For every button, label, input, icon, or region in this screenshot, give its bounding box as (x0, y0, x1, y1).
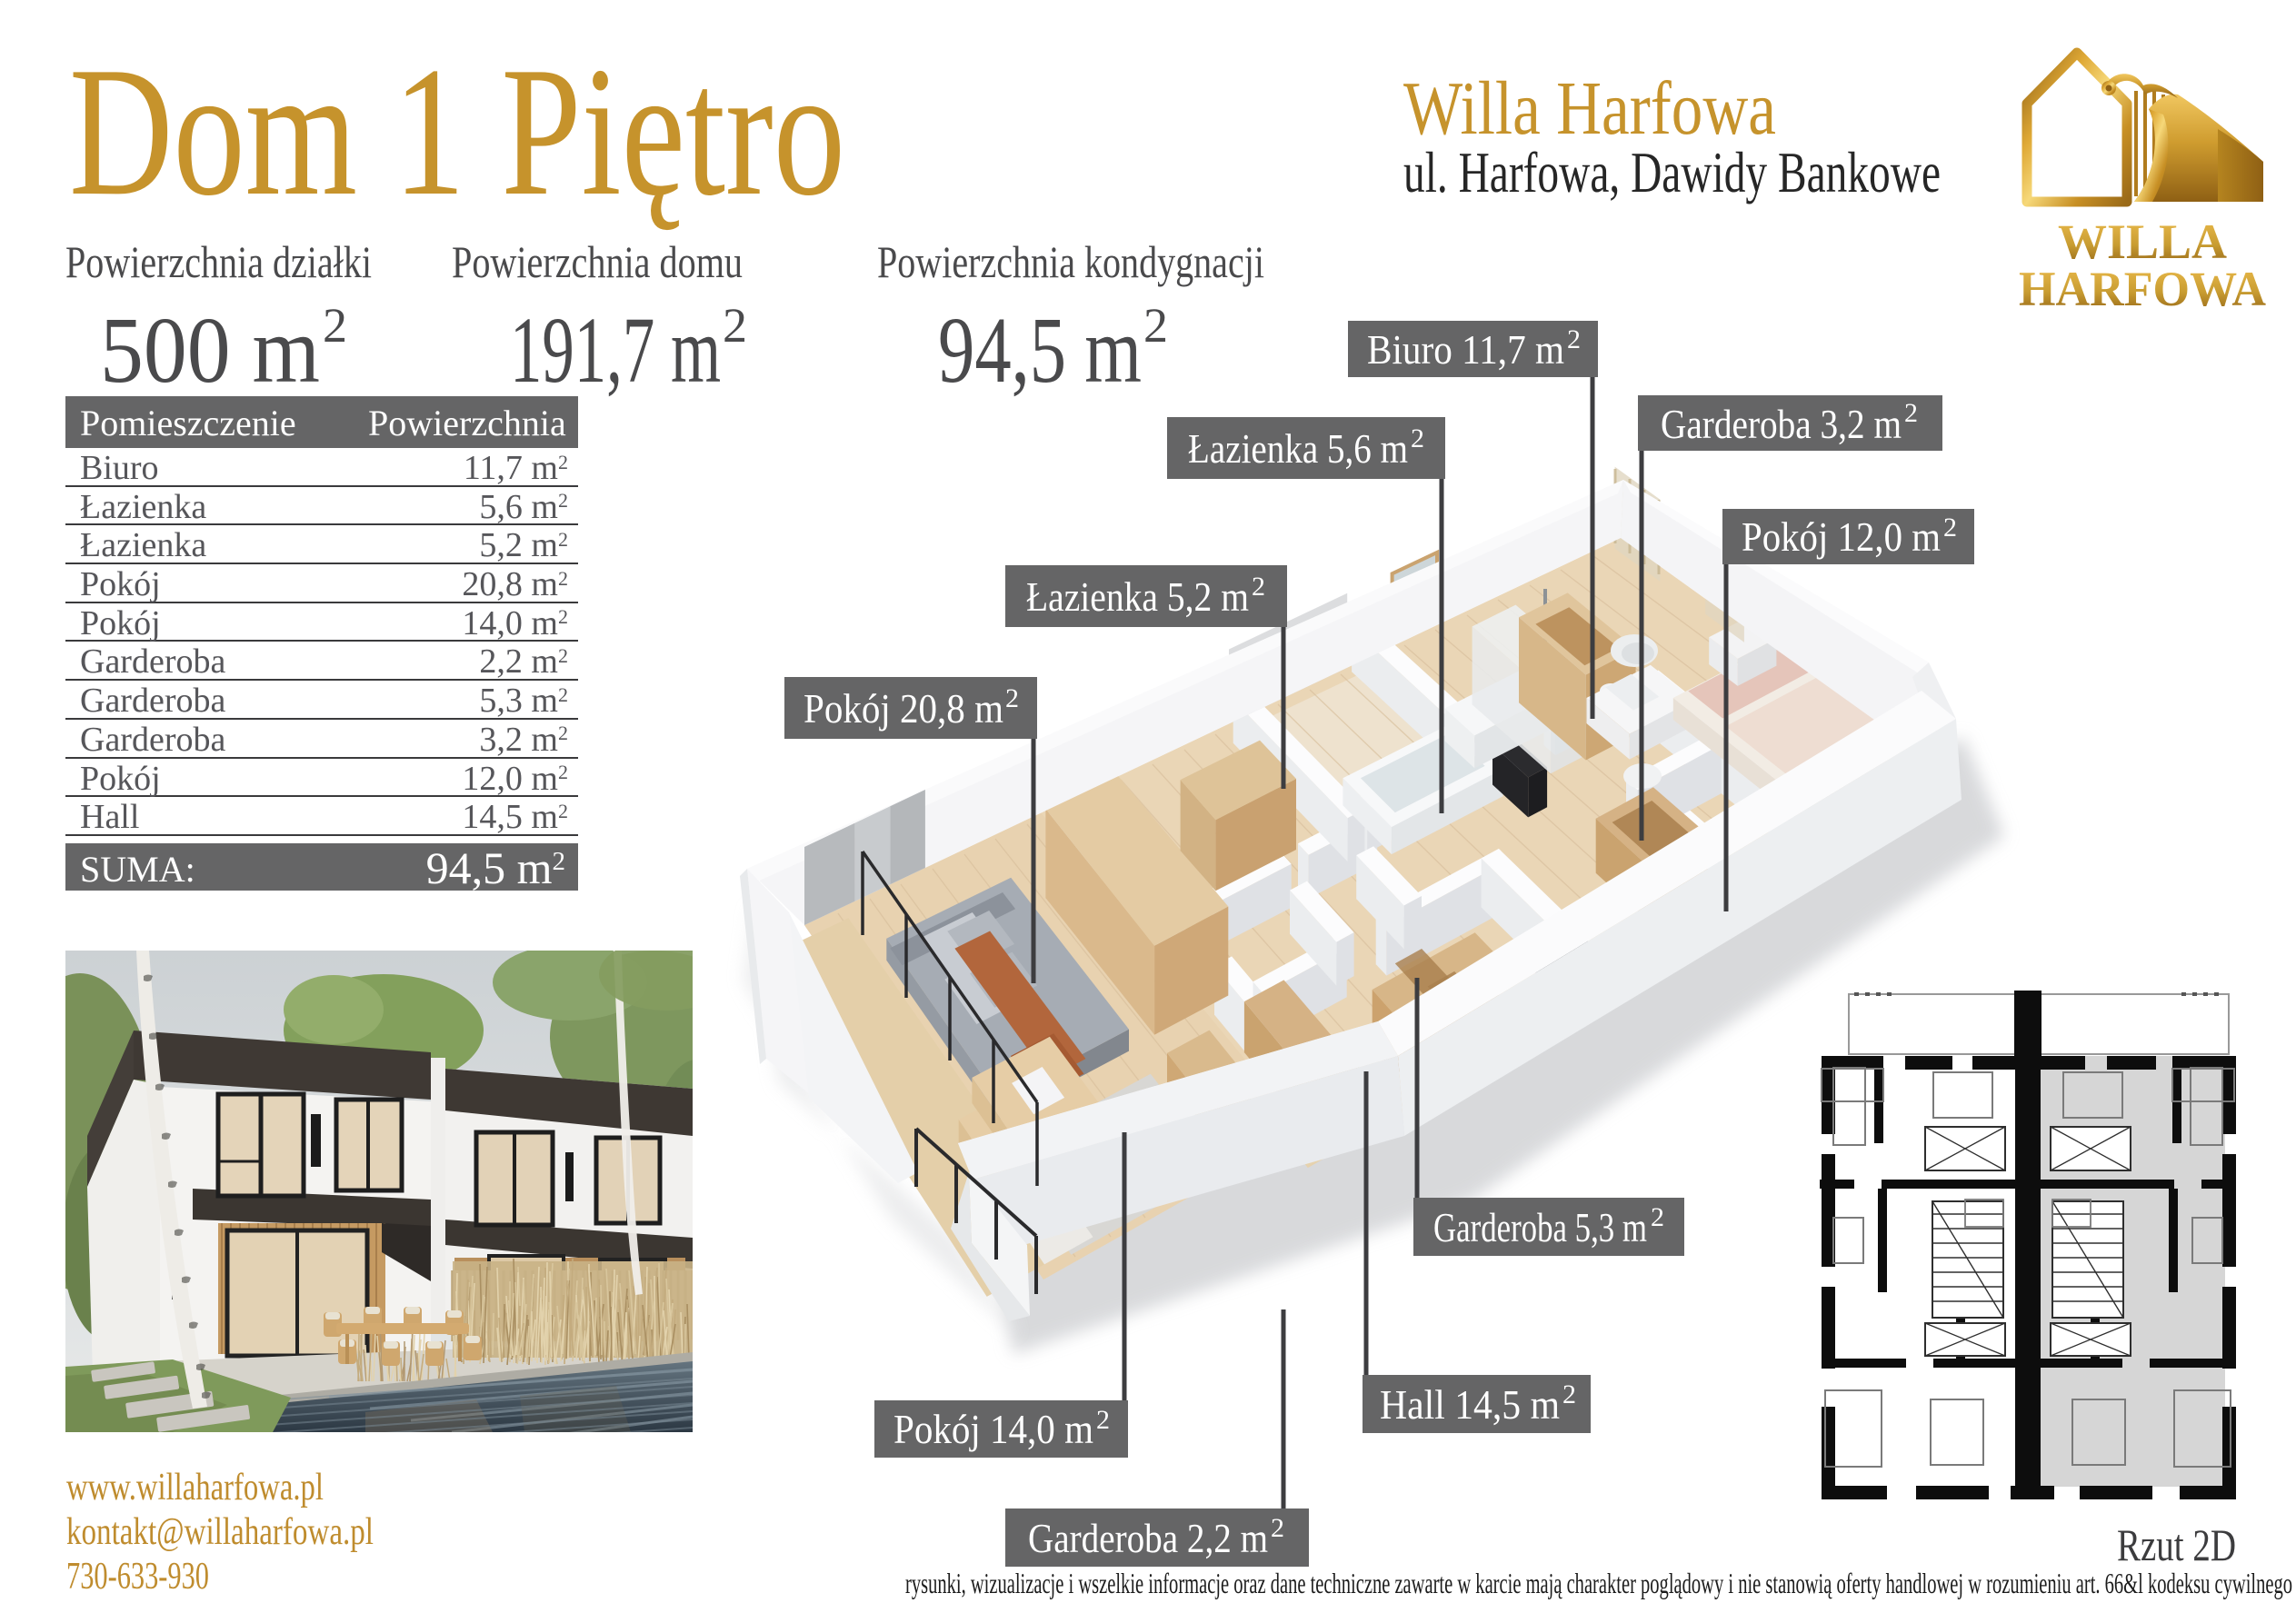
svg-text:2: 2 (1411, 423, 1424, 453)
svg-text:Powierzchnia domu: Powierzchnia domu (452, 236, 743, 287)
svg-text:2: 2 (1096, 1405, 1110, 1435)
svg-text:2: 2 (1567, 324, 1581, 354)
svg-text:Pokój 12,0 m: Pokój 12,0 m (1742, 513, 1941, 560)
svg-text:Łazienka 5,6 m: Łazienka 5,6 m (1188, 425, 1408, 472)
svg-text:Rzut 2D: Rzut 2D (2117, 1519, 2236, 1570)
svg-text:kontakt@willaharfowa.pl: kontakt@willaharfowa.pl (66, 1511, 374, 1553)
svg-text:94,5 m: 94,5 m (938, 298, 1142, 403)
svg-text:Powierzchnia działki: Powierzchnia działki (65, 236, 372, 287)
svg-text:730-633-930: 730-633-930 (66, 1556, 209, 1598)
svg-text:Powierzchnia kondygnacji: Powierzchnia kondygnacji (877, 236, 1264, 287)
svg-text:HARFOWA: HARFOWA (2019, 262, 2266, 316)
svg-text:Pokój 14,0 m: Pokój 14,0 m (893, 1406, 1093, 1452)
svg-text:rysunki, wizualizacje i wszelk: rysunki, wizualizacje i wszelkie informa… (905, 1568, 2292, 1599)
svg-text:Łazienka 5,2 m: Łazienka 5,2 m (1026, 573, 1249, 620)
svg-text:2: 2 (1904, 398, 1918, 428)
svg-text:Garderoba 5,3 m: Garderoba 5,3 m (1433, 1204, 1647, 1250)
svg-text:2: 2 (323, 298, 347, 353)
svg-text:2: 2 (723, 298, 747, 353)
svg-text:ul. Harfowa, Dawidy Bankowe: ul. Harfowa, Dawidy Bankowe (1403, 141, 1941, 204)
svg-text:Willa Harfowa: Willa Harfowa (1403, 66, 1776, 151)
svg-text:500 m: 500 m (100, 298, 320, 403)
svg-text:www.willaharfowa.pl: www.willaharfowa.pl (66, 1467, 324, 1508)
svg-text:2: 2 (1252, 572, 1265, 602)
svg-text:2: 2 (1562, 1379, 1576, 1409)
svg-text:2: 2 (1271, 1513, 1284, 1543)
svg-text:191,7 m: 191,7 m (510, 298, 721, 403)
svg-text:Pokój 20,8 m: Pokój 20,8 m (804, 685, 1003, 732)
svg-text:2: 2 (1943, 513, 1957, 543)
svg-text:Garderoba 3,2 m: Garderoba 3,2 m (1661, 401, 1902, 447)
svg-text:Dom 1 Piętro: Dom 1 Piętro (69, 29, 845, 234)
svg-text:Garderoba 2,2 m: Garderoba 2,2 m (1028, 1515, 1268, 1561)
svg-text:Hall 14,5 m: Hall 14,5 m (1380, 1381, 1560, 1428)
svg-text:Biuro 11,7 m: Biuro 11,7 m (1367, 326, 1564, 373)
svg-text:2: 2 (1005, 683, 1019, 713)
svg-text:WILLA: WILLA (2058, 214, 2227, 269)
svg-text:2: 2 (1651, 1202, 1664, 1232)
svg-text:2: 2 (1143, 298, 1168, 353)
